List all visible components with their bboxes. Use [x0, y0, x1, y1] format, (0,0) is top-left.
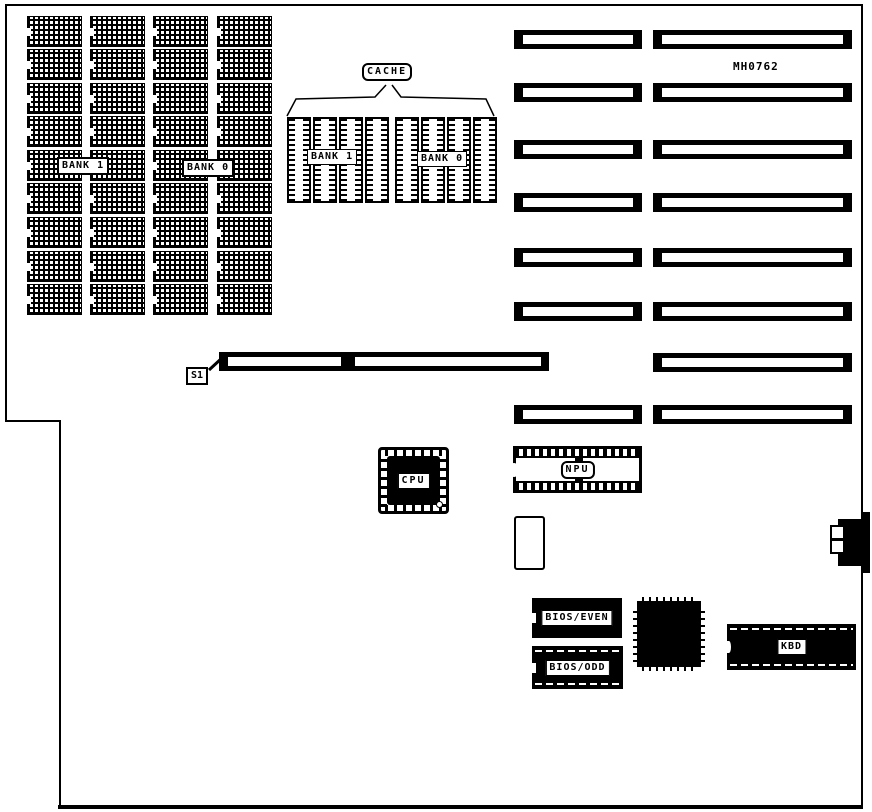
dram-bank1-label: BANK 1 [57, 157, 109, 175]
dram-chip [90, 217, 145, 248]
cache-chip [365, 117, 389, 203]
dram-chip [217, 217, 272, 248]
cache-callout-right-line [392, 85, 494, 116]
cpu-pins [385, 505, 442, 511]
bios-even-chip: BIOS/EVEN [532, 598, 622, 638]
dram-chip [27, 116, 82, 147]
qfp-chip [637, 601, 701, 667]
keyboard-connector-tab [830, 539, 845, 554]
crystal-oscillator [514, 516, 545, 570]
expansion-slot-short [514, 140, 642, 159]
dram-chip [217, 284, 272, 315]
dram-chip [27, 251, 82, 282]
cache-bank1-label: BANK 1 [307, 149, 357, 165]
expansion-slot-long [653, 83, 852, 102]
expansion-slot-long [653, 140, 852, 159]
cache-bank0-label: BANK 0 [417, 151, 467, 167]
dram-chip [217, 16, 272, 47]
expansion-slot-short [514, 193, 642, 212]
expansion-slot-short [514, 302, 642, 321]
cache-chip [473, 117, 497, 203]
dram-bank0-label: BANK 0 [182, 159, 234, 177]
dram-chip [90, 284, 145, 315]
cpu-pin1-dot [436, 501, 443, 508]
kbd-label: KBD [777, 639, 806, 655]
dram-chip [217, 251, 272, 282]
dram-chip [27, 83, 82, 114]
s1-slot [219, 352, 549, 371]
cache-label: CACHE [362, 63, 412, 81]
expansion-slot-long [653, 193, 852, 212]
dram-chip [217, 49, 272, 80]
dram-chip [217, 116, 272, 147]
s1-label: S1 [186, 367, 208, 385]
motherboard-diagram: BANK 1 BANK 0 CACHE BANK 1 BANK 0 S1 MH0… [0, 0, 872, 812]
qfp-pins [642, 667, 696, 671]
bios-even-label: BIOS/EVEN [541, 610, 612, 626]
cpu-label: CPU [397, 473, 429, 489]
bios-odd-notch [532, 663, 536, 673]
dram-chip [90, 83, 145, 114]
dram-chip [27, 16, 82, 47]
bios-odd-chip: BIOS/ODD [532, 646, 623, 689]
expansion-slot-long [653, 248, 852, 267]
dram-chip [153, 83, 208, 114]
dram-chip [27, 284, 82, 315]
npu-pin-row [519, 483, 636, 490]
keyboard-connector [838, 519, 866, 566]
kbd-pin-row [730, 664, 853, 666]
expansion-slot-short [514, 405, 642, 424]
expansion-slot-short [514, 248, 642, 267]
keyboard-connector-tab [830, 525, 845, 540]
qfp-pins [701, 606, 705, 662]
dram-chip [90, 116, 145, 147]
expansion-slot-long [653, 405, 852, 424]
dram-chip [27, 183, 82, 214]
s1-slot-stripe [355, 357, 541, 366]
kbd-pin-row [730, 628, 853, 630]
dram-chip [153, 16, 208, 47]
s1-slot-stripe [228, 357, 341, 366]
bios-odd-pin-row [535, 683, 620, 685]
dram-chip [90, 16, 145, 47]
qfp-pins [633, 606, 637, 662]
cache-callout-left-line [287, 85, 386, 116]
dram-chip [153, 183, 208, 214]
npu-notch [509, 463, 519, 477]
npu-socket: NPU [513, 446, 642, 493]
dram-chip [153, 116, 208, 147]
dram-chip [27, 49, 82, 80]
dram-chip [90, 183, 145, 214]
dram-chip [27, 217, 82, 248]
dram-chip [153, 217, 208, 248]
expansion-slot-short [514, 83, 642, 102]
expansion-slot-long [653, 353, 852, 372]
cpu-chip: CPU [378, 447, 449, 514]
dram-chip [90, 49, 145, 80]
bios-odd-label: BIOS/ODD [545, 660, 609, 676]
qfp-pins [642, 597, 696, 601]
dram-chip [153, 284, 208, 315]
part-number: MH0762 [733, 60, 779, 73]
expansion-slot-long [653, 302, 852, 321]
bios-even-notch [532, 613, 536, 623]
bios-odd-pin-row [535, 650, 620, 652]
kbd-notch [727, 641, 731, 653]
expansion-slot-long [653, 30, 852, 49]
dram-chip [217, 83, 272, 114]
keyboard-connector-edge [862, 512, 870, 573]
cache-chip [395, 117, 419, 203]
npu-label: NPU [560, 461, 594, 479]
dram-chip [153, 49, 208, 80]
npu-pin-row [519, 449, 636, 456]
cpu-pins [440, 454, 446, 507]
dram-chip [90, 251, 145, 282]
dram-chip [217, 183, 272, 214]
kbd-chip: KBD [727, 624, 856, 670]
expansion-slot-short [514, 30, 642, 49]
dram-chip [153, 251, 208, 282]
